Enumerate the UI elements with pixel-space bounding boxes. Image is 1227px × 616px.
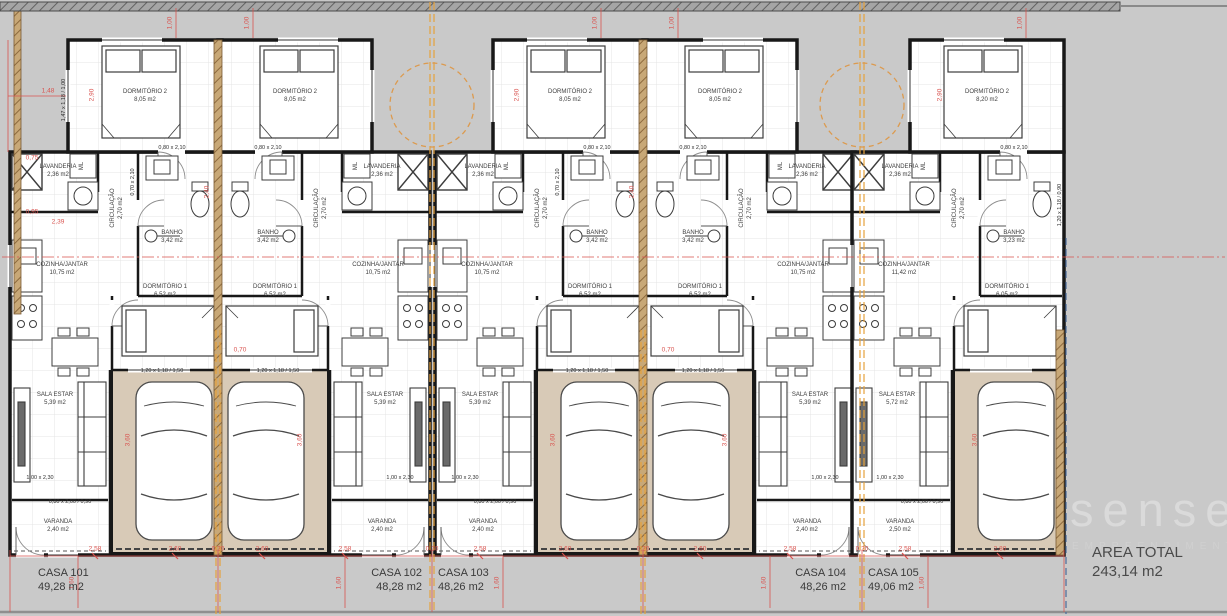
dim-label: 2,40	[204, 186, 211, 199]
opening-label: 1,00 x 2,30	[811, 475, 838, 481]
room-label-varanda: VARANDA2,50 m2	[886, 519, 915, 535]
opening-label: 1,00 x 2,30	[876, 475, 903, 481]
area-total: AREA TOTAL243,14 m2	[1092, 544, 1183, 582]
dim-label: 3,60	[550, 434, 557, 447]
unit-label-casa104: CASA 10448,26 m2	[762, 566, 846, 595]
room-label-sala: SALA ESTAR5,72 m2	[879, 392, 915, 408]
dim-label: 1,00	[592, 17, 599, 30]
room-label-ml: ML	[778, 162, 786, 170]
dim-label: 2,90	[514, 89, 521, 102]
plan-linework	[0, 0, 1227, 616]
room-label-dormitorio1: DORMITÓRIO 16,52 m2	[253, 284, 297, 300]
room-label-banho: BANHO3,23 m2	[1003, 230, 1025, 246]
opening-label: 0,70 x 2,10	[130, 168, 136, 195]
opening-label: 1,47 x 1,18 / 1,00	[61, 79, 67, 122]
opening-label: 0,80 x 2,10	[158, 145, 185, 151]
room-label-cozinha: COZINHA/JANTAR10,75 m2	[777, 262, 829, 278]
opening-label: 0,80 x 2,00 / 0,90	[474, 499, 517, 505]
unit-label-casa103: CASA 10348,26 m2	[438, 566, 489, 595]
room-label-varanda: VARANDA2,40 m2	[44, 519, 73, 535]
opening-label: 1,00 x 2,30	[26, 475, 53, 481]
floor-plan-canvas: DORMITÓRIO 28,05 m2 LAVANDERIA2,36 m2 ML…	[0, 0, 1227, 616]
room-label-varanda: VARANDA2,40 m2	[368, 519, 397, 535]
opening-label: 0,80 x 2,00 / 0,90	[49, 499, 92, 505]
room-label-dormitorio2: DORMITÓRIO 28,20 m2	[965, 89, 1009, 105]
dim-label: 2,58	[784, 546, 797, 553]
dim-label: 1,00	[669, 17, 676, 30]
dim-label: 2,90	[937, 89, 944, 102]
room-label-banho: BANHO3,42 m2	[257, 230, 279, 246]
opening-label: 1,20 x 1,18 / 1,50	[682, 368, 725, 374]
room-label-ml: ML	[353, 162, 361, 170]
room-label-cozinha: COZINHA/JANTAR10,75 m2	[36, 262, 88, 278]
room-label-dormitorio2: DORMITÓRIO 28,05 m2	[548, 89, 592, 105]
dim-label: 2,60	[694, 546, 707, 553]
dim-label: 2,58	[899, 546, 912, 553]
room-label-dormitorio1: DORMITÓRIO 16,52 m2	[678, 284, 722, 300]
room-label-dormitorio2: DORMITÓRIO 28,05 m2	[123, 89, 167, 105]
dim-label: 2,60	[169, 546, 182, 553]
room-label-lavanderia: LAVANDERIA2,36 m2	[39, 164, 76, 180]
dim-label: 1,00	[244, 17, 251, 30]
room-label-dormitorio2: DORMITÓRIO 28,05 m2	[273, 89, 317, 105]
dim-label: 2,39	[52, 219, 65, 226]
dim-label: 0,95	[26, 209, 39, 216]
opening-label: 0,80 x 2,10	[583, 145, 610, 151]
opening-label: 1,20 x 1,18 / 1,50	[141, 368, 184, 374]
dim-label: 0,20	[856, 546, 869, 553]
opening-label: 0,80 x 2,10	[254, 145, 281, 151]
opening-label: 1,00 x 2,30	[451, 475, 478, 481]
room-label-sala: SALA ESTAR5,39 m2	[792, 392, 828, 408]
dim-label: 3,60	[297, 434, 304, 447]
dim-label: 3,60	[722, 434, 729, 447]
room-label-circulacao: CIRCULAÇÃO2,70 m2	[314, 188, 330, 227]
room-label-lavanderia: LAVANDERIA2,36 m2	[363, 164, 400, 180]
room-label-lavanderia: LAVANDERIA2,36 m2	[788, 164, 825, 180]
room-label-varanda: VARANDA2,40 m2	[469, 519, 498, 535]
dim-label: 2,60	[256, 546, 269, 553]
dim-label: 2,90	[89, 89, 96, 102]
room-label-circulacao: CIRCULAÇÃO2,70 m2	[952, 188, 968, 227]
opening-label: 0,80 x 2,00 / 0,90	[901, 499, 944, 505]
dim-label: 3,60	[125, 434, 132, 447]
room-label-ml: ML	[79, 162, 87, 170]
dim-label: 1,00	[167, 17, 174, 30]
opening-label: 1,00 x 2,30	[386, 475, 413, 481]
dim-label: 0,20	[212, 546, 225, 553]
room-label-ml: ML	[504, 162, 512, 170]
dim-label: 0,20	[637, 546, 650, 553]
unit-label-casa101: CASA 10149,28 m2	[38, 566, 89, 595]
room-label-varanda: VARANDA2,40 m2	[793, 519, 822, 535]
opening-label: 0,80 x 2,10	[1000, 145, 1027, 151]
room-label-dormitorio1: DORMITÓRIO 16,52 m2	[568, 284, 612, 300]
room-label-banho: BANHO3,42 m2	[161, 230, 183, 246]
dim-label: 2,58	[89, 546, 102, 553]
room-label-dormitorio1: DORMITÓRIO 16,52 m2	[143, 284, 187, 300]
room-label-circulacao: CIRCULAÇÃO2,70 m2	[535, 188, 551, 227]
dim-label: 2,80	[994, 546, 1007, 553]
room-label-banho: BANHO3,42 m2	[586, 230, 608, 246]
opening-label: 0,80 x 2,10	[679, 145, 706, 151]
room-label-sala: SALA ESTAR5,39 m2	[462, 392, 498, 408]
dim-label: 0,70	[234, 347, 247, 354]
room-label-cozinha: COZINHA/JANTAR10,75 m2	[461, 262, 513, 278]
unit-label-casa105: CASA 10549,06 m2	[868, 566, 919, 595]
room-label-cozinha: COZINHA/JANTAR11,42 m2	[878, 262, 930, 278]
dim-label: 0,75	[26, 155, 39, 162]
dim-label: 2,58	[339, 546, 352, 553]
room-label-circulacao: CIRCULAÇÃO2,70 m2	[110, 188, 126, 227]
dim-label: 1,48	[42, 88, 55, 95]
room-label-sala: SALA ESTAR5,39 m2	[367, 392, 403, 408]
room-label-lavanderia: LAVANDERIA2,36 m2	[464, 164, 501, 180]
room-label-dormitorio2: DORMITÓRIO 28,05 m2	[698, 89, 742, 105]
opening-label: 0,70 x 2,10	[555, 168, 561, 195]
opening-label: 1,20 x 1,18 / 1,50	[566, 368, 609, 374]
watermark-brand: sense	[1070, 482, 1227, 537]
dim-label: 1,00	[1017, 17, 1024, 30]
room-label-cozinha: COZINHA/JANTAR10,75 m2	[352, 262, 404, 278]
opening-label: 1,20 x 1,18 / 1,50	[257, 368, 300, 374]
room-label-ml: ML	[921, 162, 929, 170]
dim-label: 0,70	[662, 347, 675, 354]
room-label-lavanderia: LAVANDERIA2,36 m2	[881, 164, 918, 180]
dim-label: 2,40	[629, 186, 636, 199]
room-label-banho: BANHO3,42 m2	[682, 230, 704, 246]
dim-label: 2,58	[474, 546, 487, 553]
room-label-circulacao: CIRCULAÇÃO2,70 m2	[739, 188, 755, 227]
room-label-sala: SALA ESTAR5,39 m2	[37, 392, 73, 408]
dim-label: 0,20	[426, 546, 439, 553]
unit-label-casa102: CASA 10248,28 m2	[338, 566, 422, 595]
dim-label: 3,60	[972, 434, 979, 447]
dim-label: 1,60	[919, 577, 926, 590]
dim-label: 2,60	[559, 546, 572, 553]
dim-label: 1,60	[494, 577, 501, 590]
opening-label: 1,20 x 1,18 / 0,90	[1057, 184, 1063, 227]
room-label-dormitorio1: DORMITÓRIO 16,05 m2	[985, 284, 1029, 300]
